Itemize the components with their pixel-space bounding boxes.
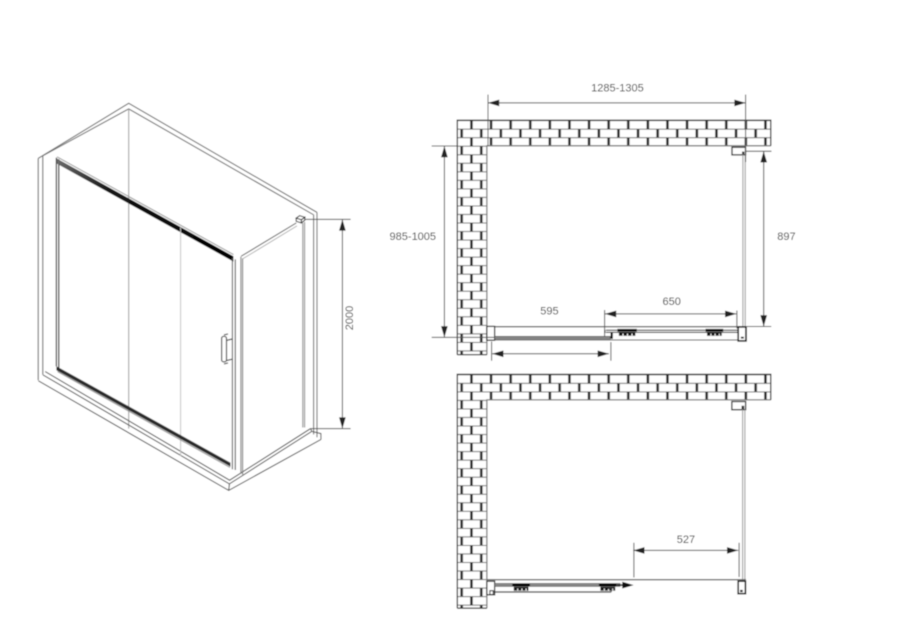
svg-text:1285-1305: 1285-1305 [591, 83, 644, 95]
svg-text:897: 897 [777, 231, 795, 243]
svg-text:595: 595 [540, 306, 558, 318]
svg-text:650: 650 [663, 296, 681, 308]
svg-text:527: 527 [677, 534, 695, 546]
svg-text:2000: 2000 [344, 306, 356, 330]
svg-text:985-1005: 985-1005 [390, 231, 437, 243]
